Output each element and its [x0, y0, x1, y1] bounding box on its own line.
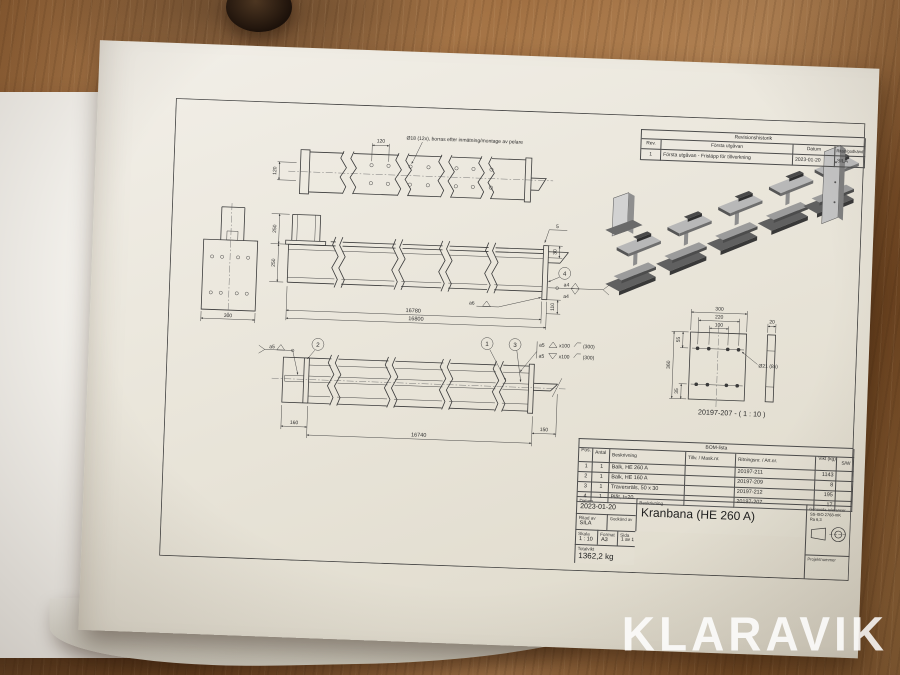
- dim-250-column: 250: [272, 224, 278, 233]
- detail-dim-35: 35: [674, 388, 680, 394]
- dim-16780: 16780: [405, 308, 421, 315]
- klaravik-watermark: KLARAVIK: [622, 606, 888, 662]
- dim-300-end: 300: [224, 313, 233, 319]
- revision-row-rev: 1: [641, 149, 661, 161]
- svg-text:a5: a5: [539, 342, 545, 348]
- titleblock-beskrivning: Beskrivning Kranbana (HE 260 A): [635, 498, 806, 537]
- ritad-value: SILA: [576, 520, 606, 527]
- projektnummer-label: Projektnummer: [805, 555, 849, 563]
- drawing-sheet: 120 120 Ø18 (12x), borras efter inmätnin…: [78, 40, 879, 658]
- bom-cell: 1: [592, 483, 609, 494]
- weld-note-right: a5 x100 (300) a5 x100 (300): [520, 341, 595, 375]
- balloon-1: 1: [485, 341, 489, 348]
- bom-col-antal: Antal: [593, 449, 611, 464]
- titleblock-format: Format A3: [597, 530, 618, 546]
- detail-dim-100: 100: [715, 322, 724, 328]
- bom-cell: 1: [592, 463, 609, 474]
- titleblock-projektnummer: Projektnummer: [804, 554, 850, 580]
- weld-a4-bottom: a4: [563, 294, 569, 300]
- projection-symbol-icon: [809, 525, 850, 546]
- svg-text:(300): (300): [583, 344, 595, 350]
- dim-120-spacing: 120: [377, 138, 386, 144]
- titleblock-sida: Sida 1 av 1: [617, 530, 636, 546]
- titleblock-datum: Datum 2023-01-20: [576, 496, 637, 515]
- bom-cell: 1: [592, 473, 609, 484]
- bom-cell: 2: [578, 472, 592, 483]
- detail-view: 300 220 100 360 55 35 Ø21 (8x) 20 20197-…: [664, 305, 780, 420]
- bom-cell: [836, 491, 853, 502]
- front-elevation: 300 250 250 5 30: [201, 202, 612, 336]
- hole-note: Ø18 (12x), borras efter inmätning/montag…: [406, 135, 523, 145]
- svg-text:(300): (300): [583, 355, 595, 361]
- detail-dim-360: 360: [666, 360, 672, 369]
- sida-value: 1 av 1: [618, 537, 635, 543]
- titleblock-skala: Skala 1 : 10: [575, 529, 598, 545]
- bom-cell: 1: [578, 462, 592, 473]
- detail-dim-20: 20: [769, 319, 775, 325]
- weld-a4-top: a4: [564, 282, 570, 288]
- titleblock-totalvikt: Totalvikt 1362,2 kg: [574, 544, 635, 565]
- note-5: 5: [556, 224, 559, 230]
- detail-dim-300: 300: [715, 306, 724, 312]
- dim-120-rows: 120: [272, 166, 278, 175]
- bom-col-sw: S/W: [837, 457, 855, 472]
- toleranser-ra: Ra 6,3: [807, 516, 851, 523]
- dim-110: 110: [550, 303, 556, 311]
- titleblock-godkand: Godkänd av: [606, 514, 636, 531]
- weld-a5-left: a5: [269, 344, 275, 350]
- balloon-3: 3: [513, 342, 517, 349]
- dim-30: 30: [552, 249, 558, 255]
- dim-16740: 16740: [411, 432, 427, 439]
- totalvikt-value: 1362,2 kg: [575, 551, 634, 562]
- revision-row-sign: SILA: [835, 156, 865, 168]
- dim-160: 160: [290, 420, 299, 426]
- svg-text:a5: a5: [539, 353, 545, 359]
- balloon-2: 2: [316, 342, 320, 349]
- revision-row-datum: 2023-01-20: [793, 155, 835, 168]
- weld-a6: a6: [469, 300, 475, 306]
- detail-caption: 20197-207 - ( 1 : 10 ): [698, 407, 766, 418]
- bom-cell: [836, 481, 853, 492]
- bom-col-vikt: Vikt (kg): [816, 457, 837, 472]
- datum-value: 2023-01-20: [577, 503, 636, 512]
- bom-cell: [836, 471, 853, 482]
- skala-value: 1 : 10: [576, 536, 597, 543]
- dim-250-beam: 250: [271, 258, 277, 267]
- titleblock-toleranser: Generella toleranser SS-ISO 2768-mK Ra 6…: [805, 504, 852, 556]
- detail-hole-note: Ø21 (8x): [758, 364, 778, 371]
- detail-dim-55: 55: [676, 336, 682, 342]
- bom-cell: 3: [578, 482, 592, 493]
- svg-text:x100: x100: [559, 343, 570, 349]
- bom-col-pos: Pos.: [579, 448, 594, 463]
- detail-dim-220: 220: [715, 314, 724, 320]
- dim-16800: 16800: [408, 316, 424, 323]
- titleblock-ritad: Ritad av SILA: [575, 513, 607, 530]
- bottom-view: 2 1 3 a5 a5 x100 (300) a5 x100: [256, 329, 596, 448]
- godkand-label: Godkänd av: [608, 515, 636, 522]
- svg-text:x100: x100: [559, 354, 570, 360]
- plan-view: 120 120 Ø18 (12x), borras efter inmätnin…: [271, 131, 554, 203]
- balloon-4: 4: [563, 271, 567, 278]
- dim-150: 150: [540, 427, 549, 433]
- format-value: A3: [598, 537, 617, 544]
